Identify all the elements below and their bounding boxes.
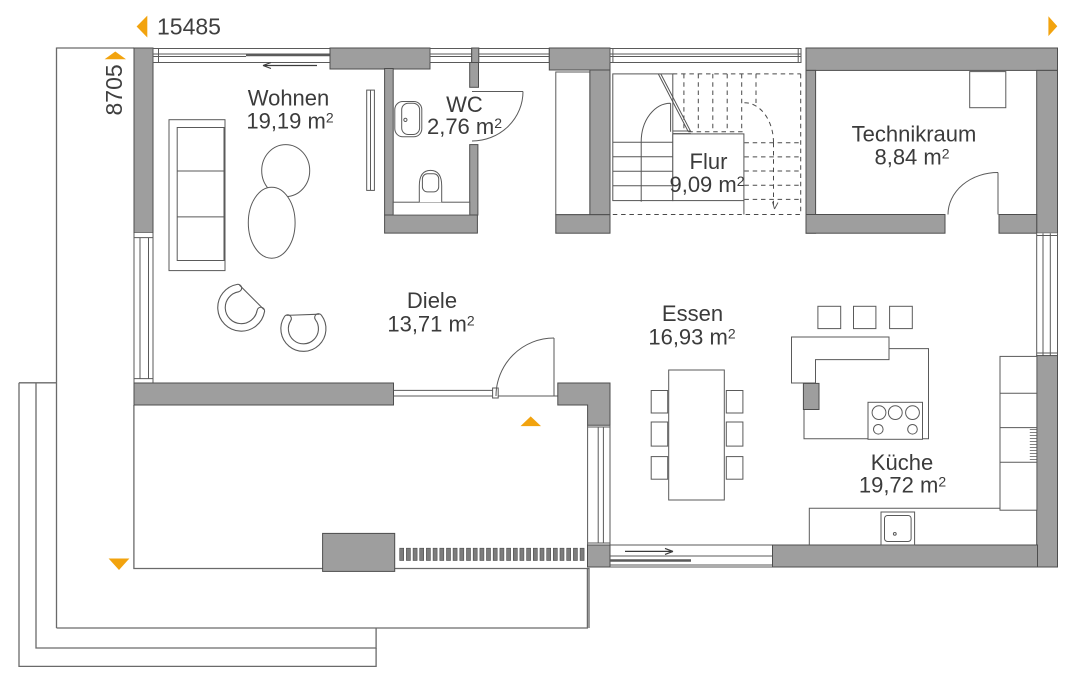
svg-text:19,72 m2: 19,72 m2 (859, 473, 947, 498)
svg-text:9,09 m2: 9,09 m2 (669, 172, 744, 197)
svg-text:Küche: Küche (871, 450, 933, 475)
svg-text:13,71 m2: 13,71 m2 (387, 312, 475, 337)
svg-text:19,19 m2: 19,19 m2 (246, 109, 334, 134)
svg-text:Essen: Essen (662, 301, 723, 326)
svg-text:Technikraum: Technikraum (852, 122, 977, 147)
svg-text:Flur: Flur (690, 149, 728, 174)
svg-text:8,84 m2: 8,84 m2 (874, 145, 949, 170)
svg-text:Diele: Diele (407, 288, 457, 313)
svg-text:15485: 15485 (157, 14, 221, 40)
svg-text:8705: 8705 (101, 64, 127, 115)
svg-text:16,93 m2: 16,93 m2 (648, 325, 736, 350)
svg-text:Wohnen: Wohnen (248, 86, 330, 111)
svg-text:2,76 m2: 2,76 m2 (427, 114, 502, 139)
